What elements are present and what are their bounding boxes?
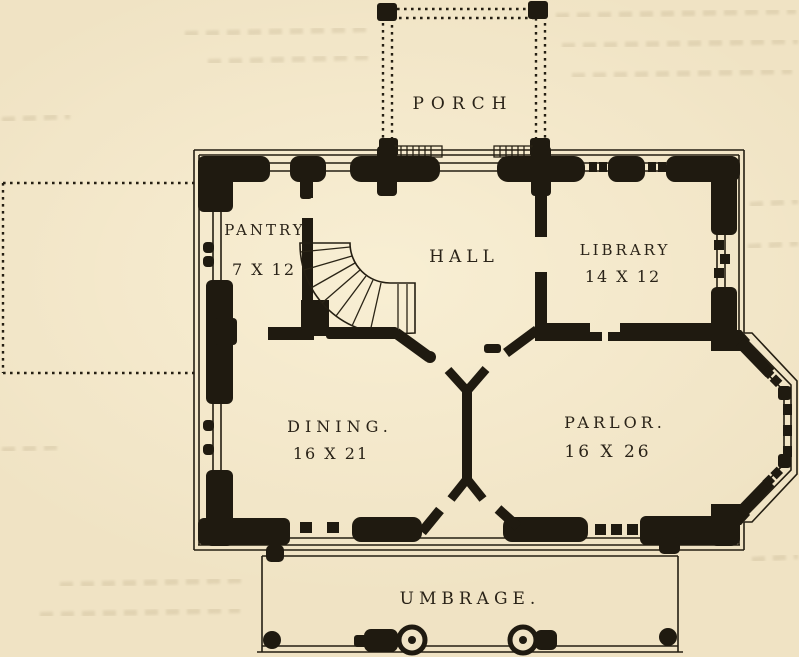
bay-window-mullions xyxy=(762,366,792,487)
house-outer-lines xyxy=(194,150,744,550)
porch-label: PORCH xyxy=(412,94,513,114)
column-base-octagon xyxy=(399,627,425,653)
column-base-octagon xyxy=(510,627,536,653)
dining-label: DINING. xyxy=(287,417,393,436)
porch-dotted-outline xyxy=(383,9,545,145)
umbrage-label: UMBRAGE. xyxy=(400,589,541,609)
terrace-dotted-outline xyxy=(3,183,197,373)
parlor-size: 16 X 26 xyxy=(564,442,651,462)
library-size: 14 X 12 xyxy=(585,267,661,286)
pantry-label: PANTRY xyxy=(224,221,305,239)
parlor-label: PARLOR. xyxy=(564,413,666,432)
umbrage-veranda: UMBRAGE. xyxy=(257,537,683,653)
umbrage-columns xyxy=(263,627,677,653)
hall-label: HALL xyxy=(429,247,499,267)
dining-size: 16 X 21 xyxy=(293,444,369,463)
bay-window xyxy=(711,330,797,525)
room-labels: PANTRY 7 X 12 HALL LIBRARY 14 X 12 DININ… xyxy=(224,221,670,463)
sliding-door-wall xyxy=(448,369,486,499)
porch-area: PORCH xyxy=(377,1,550,157)
scanned-book-page: PORCH xyxy=(0,0,799,657)
pantry-size: 7 X 12 xyxy=(232,260,296,279)
porch-corner-posts xyxy=(377,1,550,157)
floor-plan-figure: PORCH xyxy=(0,0,799,657)
library-label: LIBRARY xyxy=(580,241,671,259)
